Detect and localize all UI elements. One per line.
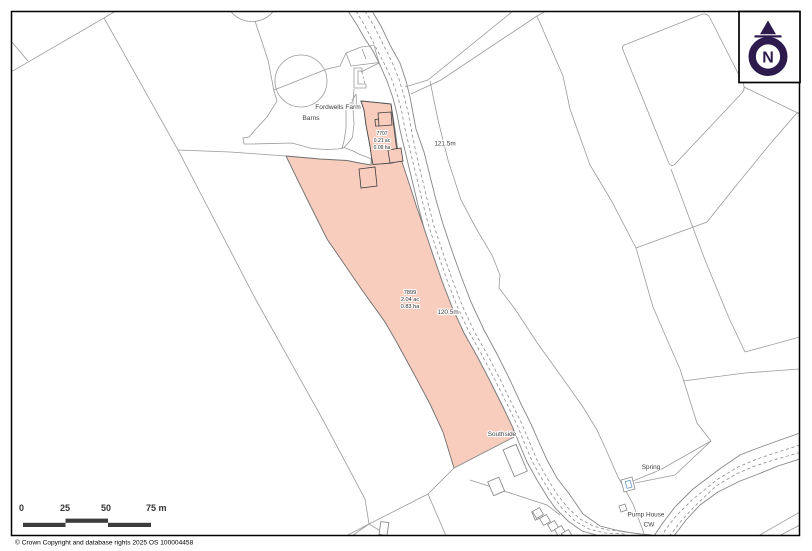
svg-text:Fordwells Farm: Fordwells Farm (315, 104, 361, 111)
svg-text:0.83 ha: 0.83 ha (401, 304, 421, 310)
svg-text:CW: CW (644, 522, 656, 529)
svg-text:120.5m: 120.5m (437, 309, 458, 316)
svg-text:75 m: 75 m (146, 503, 167, 513)
svg-text:Southside: Southside (488, 431, 517, 438)
svg-text:Barns: Barns (302, 115, 320, 122)
svg-text:2.04 ac: 2.04 ac (401, 297, 420, 303)
svg-text:© Crown Copyright and database: © Crown Copyright and database rights 20… (15, 539, 194, 547)
svg-text:0.09 ha: 0.09 ha (374, 145, 391, 151)
svg-text:Spring: Spring (642, 464, 661, 471)
svg-text:0.21 ac: 0.21 ac (374, 138, 391, 144)
svg-text:7899: 7899 (404, 290, 416, 296)
svg-text:N: N (762, 49, 774, 66)
svg-text:25: 25 (60, 503, 70, 513)
svg-text:121.5m: 121.5m (434, 141, 455, 148)
svg-text:7707: 7707 (376, 131, 387, 137)
svg-text:0: 0 (19, 503, 24, 513)
svg-text:50: 50 (101, 503, 111, 513)
svg-text:Pump House: Pump House (628, 512, 665, 519)
